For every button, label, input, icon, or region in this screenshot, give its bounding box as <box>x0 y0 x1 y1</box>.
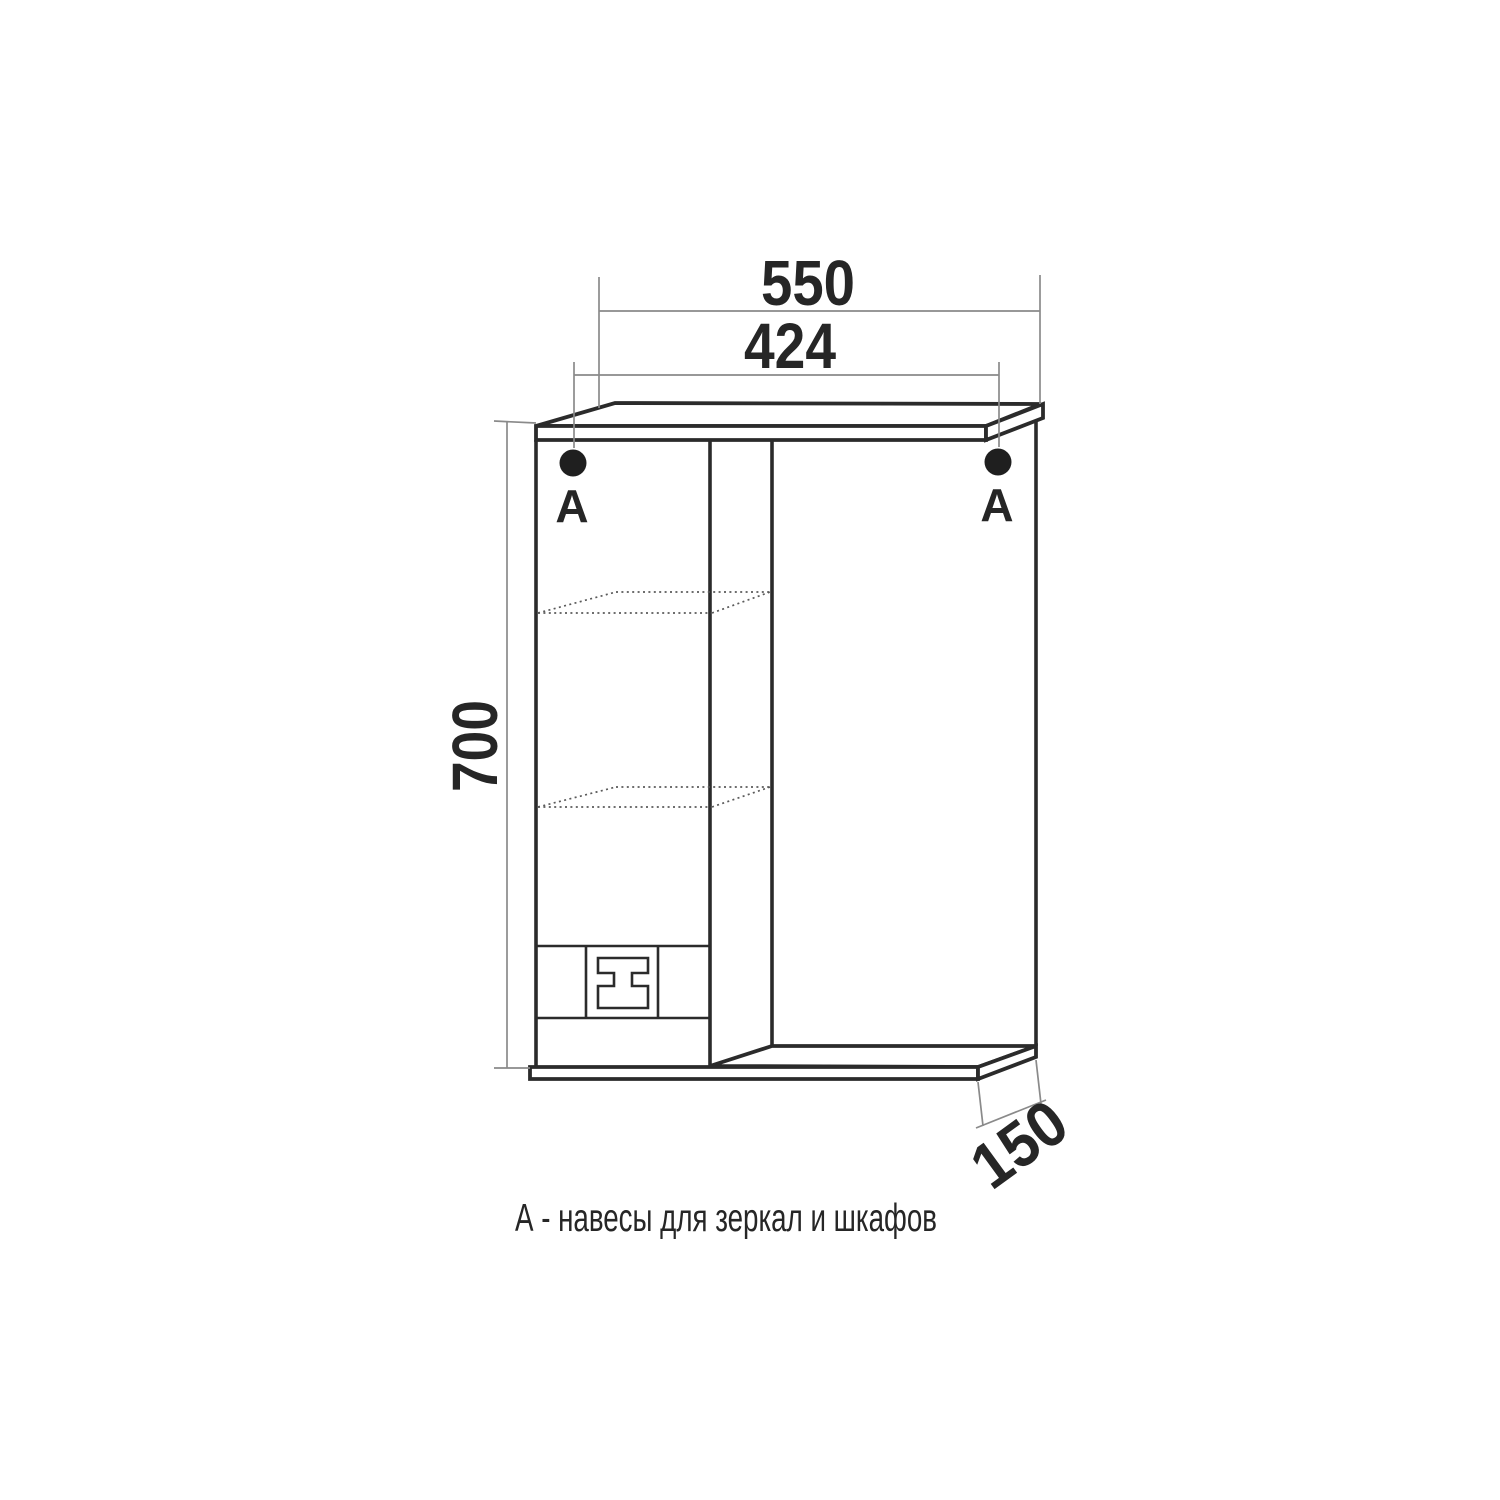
cabinet-technical-drawing: А А 550 424 700 150 А - навесы для зерка… <box>0 0 1500 1500</box>
shelf-upper <box>538 592 770 613</box>
dim-550-value: 550 <box>761 247 855 319</box>
drawing-canvas: А А 550 424 700 150 А - навесы для зерка… <box>0 0 1500 1500</box>
top-board <box>536 403 1043 440</box>
dim-height: 700 <box>439 421 536 1068</box>
mounting-points: А А <box>555 449 1013 533</box>
bottom-board <box>530 1046 1036 1079</box>
shelf-upper-right-edge <box>712 592 770 613</box>
cabinet-body <box>536 420 1036 1066</box>
marker-letter-right: А <box>980 479 1013 531</box>
shelf-lower-left-edge <box>538 787 616 807</box>
dim-150-ext-front <box>978 1082 983 1126</box>
dim-depth: 150 <box>957 1060 1080 1203</box>
bottom-board-front-face <box>530 1067 978 1079</box>
top-board-front-face <box>536 426 986 440</box>
marker-letter-left: А <box>555 480 588 532</box>
mounting-dot-left <box>560 450 587 477</box>
caption-note: А - навесы для зеркал и шкафов <box>515 1197 937 1240</box>
top-board-top-face <box>536 403 1041 426</box>
shelf-lower-right-edge <box>712 787 770 807</box>
mounting-dot-right <box>985 449 1012 476</box>
drawer <box>536 946 710 1018</box>
dim-700-tick-top <box>494 421 536 423</box>
dim-700-value: 700 <box>439 700 511 792</box>
handle-cutout-icon <box>598 958 648 1008</box>
dim-150-value: 150 <box>957 1086 1080 1203</box>
shelf-upper-left-edge <box>538 592 616 613</box>
dim-424-value: 424 <box>744 310 836 382</box>
shelf-lower <box>538 787 770 807</box>
shelves-dashed <box>538 592 770 807</box>
